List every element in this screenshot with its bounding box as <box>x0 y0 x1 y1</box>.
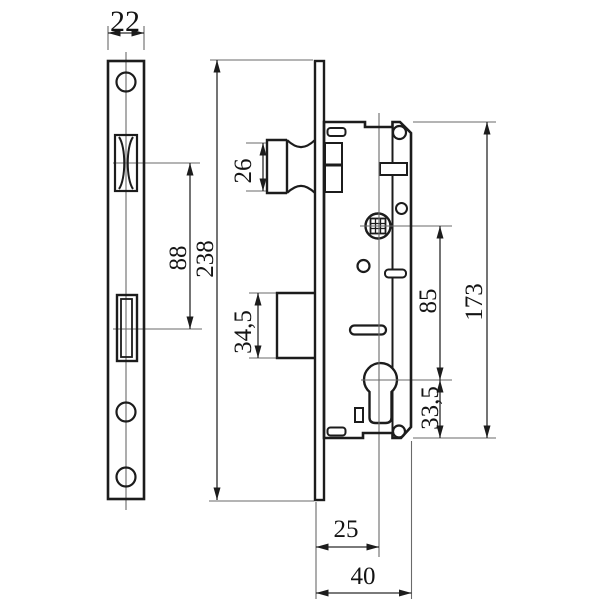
oval-slot <box>350 326 386 335</box>
right-side-slot <box>380 163 407 175</box>
top-screw-hole <box>393 126 406 139</box>
small-vertical-slot <box>355 408 363 422</box>
latch-tail-lower <box>325 166 342 193</box>
top-left-slot <box>328 128 346 136</box>
latch-roller-bottom-arc <box>287 186 315 193</box>
dimension-labels: 22 26 34,5 88 238 85 173 33,5 25 40 <box>110 5 488 590</box>
dim-case-height-label: 173 <box>461 283 488 321</box>
front-plate <box>315 61 324 500</box>
dim-follower-to-cylinder-label: 85 <box>415 289 442 314</box>
latch-bolt <box>267 140 287 193</box>
euro-cylinder-hole <box>364 363 397 423</box>
bottom-left-slot <box>328 428 346 436</box>
small-hole <box>358 260 370 272</box>
dim-latch-height-label: 26 <box>230 159 257 184</box>
dim-case-depth-label: 40 <box>351 563 376 590</box>
small-fixing-hole <box>396 203 407 214</box>
dim-faceplate-length-label: 238 <box>192 240 219 278</box>
latch-roller-top-arc <box>287 140 315 147</box>
latch-tail-upper <box>325 143 342 165</box>
dim-cylinder-to-bottom-label: 33,5 <box>417 386 444 430</box>
right-slot-2 <box>385 270 406 278</box>
deadbolt-cutout-outer <box>117 295 137 361</box>
dim-latch-to-deadbolt-label: 88 <box>165 246 192 271</box>
lock-technical-drawing-page: 22 26 34,5 88 238 85 173 33,5 25 40 <box>0 0 600 600</box>
case-details <box>328 126 408 438</box>
dim-deadbolt-height-label: 34,5 <box>230 310 257 354</box>
deadbolt <box>277 293 315 358</box>
dim-faceplate-width-label: 22 <box>110 5 140 38</box>
dim-backset-label: 25 <box>334 516 359 543</box>
lock-drawing-canvas: 22 26 34,5 88 238 85 173 33,5 25 40 <box>0 0 600 600</box>
